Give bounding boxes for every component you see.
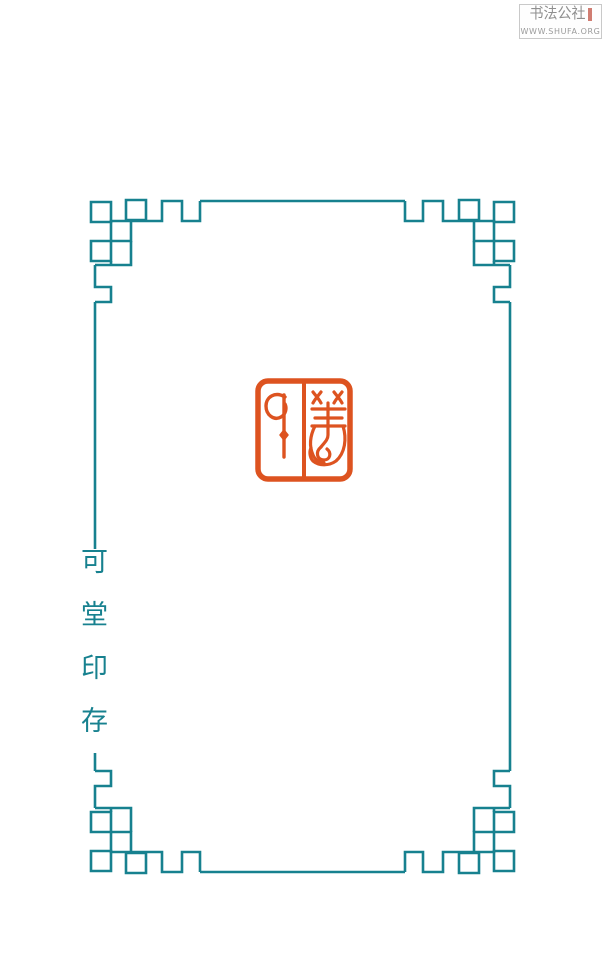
watermark-url: WWW.SHUFA.ORG xyxy=(521,27,601,36)
site-watermark: 书法公社 WWW.SHUFA.ORG xyxy=(519,4,602,39)
watermark-url-row: WWW.SHUFA.ORG xyxy=(520,27,601,36)
corner-ornament-top-right xyxy=(405,200,514,302)
seal-book-page: 可 堂 印 存 xyxy=(0,0,605,964)
title-char-4: 存 xyxy=(81,708,108,736)
watermark-seal-icon xyxy=(588,8,592,21)
corner-ornament-top-left xyxy=(91,200,200,302)
title-char-2: 堂 xyxy=(81,602,108,630)
vertical-title: 可 堂 印 存 xyxy=(80,549,109,736)
watermark-site-name: 书法公社 xyxy=(530,6,586,23)
watermark-title-row: 书法公社 xyxy=(520,6,601,22)
title-char-3: 印 xyxy=(81,655,108,683)
seal-stamp xyxy=(255,378,353,482)
corner-ornament-bottom-left xyxy=(91,771,200,873)
seal-glyph-right xyxy=(310,392,345,465)
border-frame xyxy=(0,0,605,964)
title-char-1: 可 xyxy=(81,549,108,577)
seal-glyph-left xyxy=(266,395,288,457)
border-lines xyxy=(95,201,510,872)
corner-ornament-bottom-right xyxy=(405,771,514,873)
